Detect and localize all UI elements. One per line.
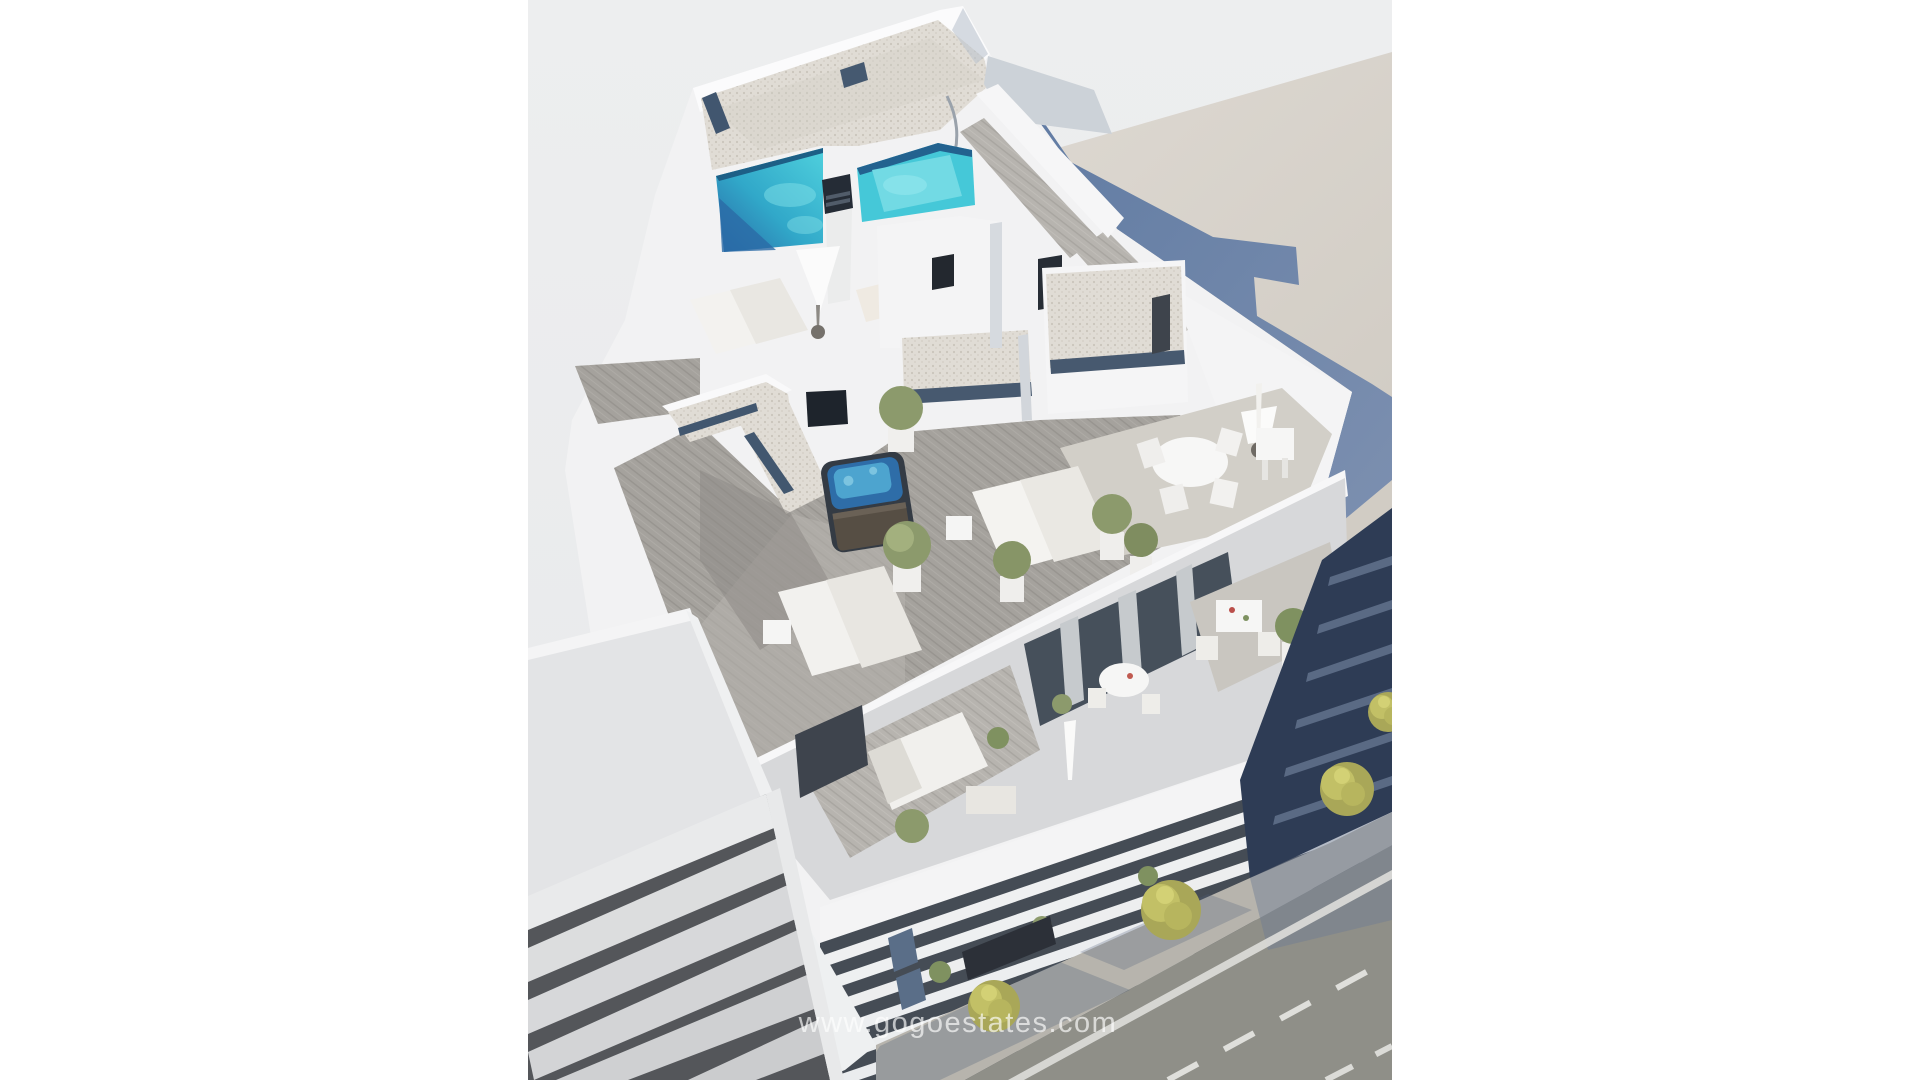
svg-text:www.gogoestates.com: www.gogoestates.com — [798, 1007, 1118, 1039]
